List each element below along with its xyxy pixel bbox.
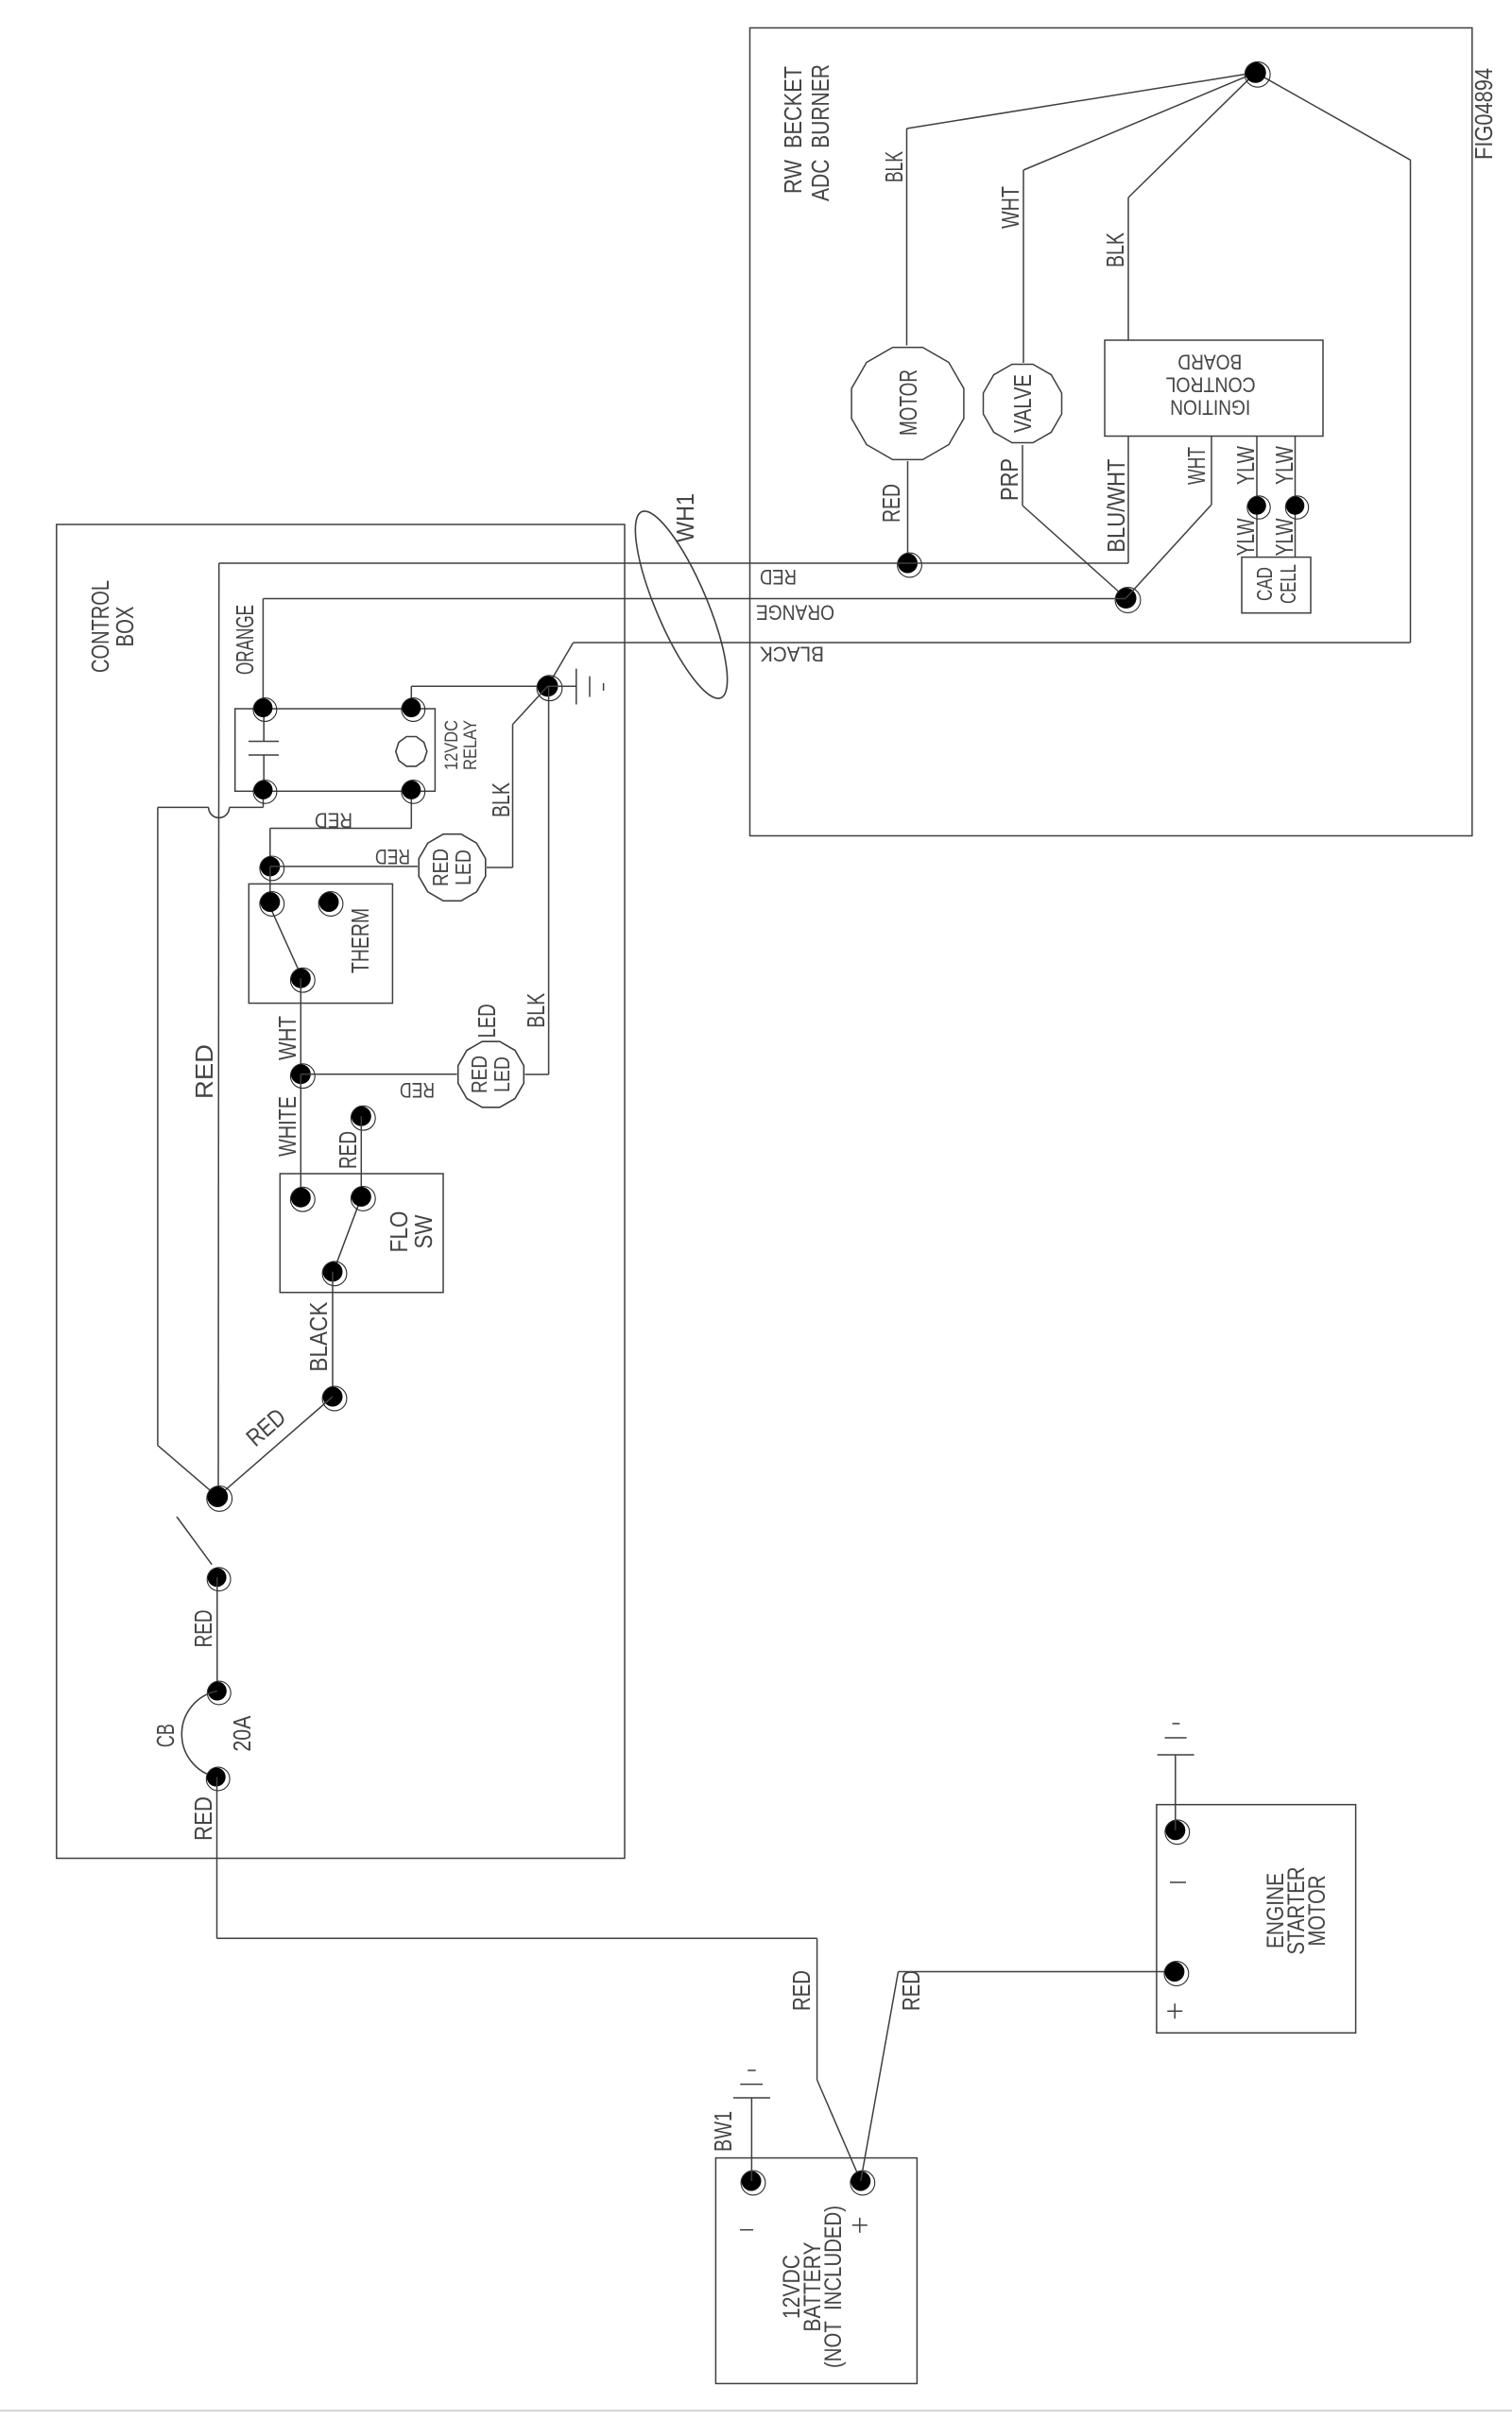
svg-text:SW: SW	[409, 1214, 438, 1248]
svg-text:RED: RED	[190, 1044, 218, 1099]
svg-text:MOTOR: MOTOR	[894, 369, 922, 436]
svg-text:BLK: BLK	[487, 782, 515, 817]
svg-text:RED: RED	[189, 1609, 217, 1647]
svg-text:IGNITION: IGNITION	[1170, 396, 1250, 420]
svg-text:RED: RED	[467, 1056, 491, 1093]
svg-text:FIG04894: FIG04894	[1469, 68, 1498, 160]
svg-text:YLW: YLW	[1231, 446, 1260, 485]
svg-text:RED: RED	[400, 1078, 435, 1102]
svg-text:WH1: WH1	[671, 493, 699, 542]
svg-text:LED: LED	[451, 850, 475, 885]
svg-text:BLK: BLK	[1101, 232, 1129, 267]
svg-text:12VDC: 12VDC	[442, 720, 462, 770]
svg-text:ADC BURNER: ADC BURNER	[806, 64, 834, 201]
svg-text:RED: RED	[375, 845, 410, 868]
svg-text:WHITE: WHITE	[273, 1096, 301, 1157]
svg-text:MOTOR: MOTOR	[1304, 1876, 1331, 1947]
svg-text:YLW: YLW	[1270, 518, 1298, 556]
svg-text:BLACK: BLACK	[304, 1301, 333, 1372]
svg-text:RED: RED	[897, 1970, 925, 2011]
svg-text:VALVE: VALVE	[1008, 374, 1037, 433]
svg-text:BLACK: BLACK	[760, 643, 824, 666]
svg-text:CELL: CELL	[1276, 564, 1300, 604]
svg-text:BLK: BLK	[522, 992, 550, 1027]
svg-text:RW BECKET: RW BECKET	[779, 66, 807, 194]
svg-text:RED: RED	[877, 484, 905, 523]
svg-text:WHT: WHT	[273, 1016, 301, 1060]
svg-text:ORANGE: ORANGE	[756, 601, 834, 625]
svg-text:(NOT INCLUDED): (NOT INCLUDED)	[820, 2206, 847, 2368]
svg-text:WHT: WHT	[1182, 447, 1211, 485]
svg-text:CONTROL: CONTROL	[1166, 373, 1256, 397]
svg-text:RED: RED	[334, 1131, 362, 1169]
svg-text:YLW: YLW	[1270, 446, 1298, 485]
svg-text:YLW: YLW	[1231, 518, 1260, 556]
svg-text:RED: RED	[428, 849, 453, 886]
svg-text:BLU/WHT: BLU/WHT	[1102, 459, 1130, 553]
svg-text:CB: CB	[151, 1724, 180, 1747]
svg-text:WHT: WHT	[996, 186, 1024, 229]
svg-text:PRP: PRP	[995, 458, 1023, 501]
svg-text:RELAY: RELAY	[461, 720, 481, 770]
svg-text:BLK: BLK	[880, 151, 908, 182]
svg-text:LED: LED	[490, 1056, 514, 1092]
svg-text:RED: RED	[760, 565, 797, 589]
svg-text:CAD: CAD	[1252, 567, 1277, 601]
svg-text:ORANGE: ORANGE	[231, 605, 259, 675]
svg-text:RED: RED	[189, 1796, 217, 1841]
svg-text:THERM: THERM	[346, 908, 374, 973]
svg-text:RED: RED	[315, 809, 352, 833]
svg-text:BOX: BOX	[111, 607, 139, 647]
svg-text:BOARD: BOARD	[1177, 351, 1242, 374]
svg-text:20A: 20A	[228, 1715, 256, 1752]
svg-text:LED: LED	[472, 1004, 501, 1038]
svg-text:BW1: BW1	[709, 2111, 737, 2152]
svg-text:RED: RED	[787, 1970, 816, 2011]
